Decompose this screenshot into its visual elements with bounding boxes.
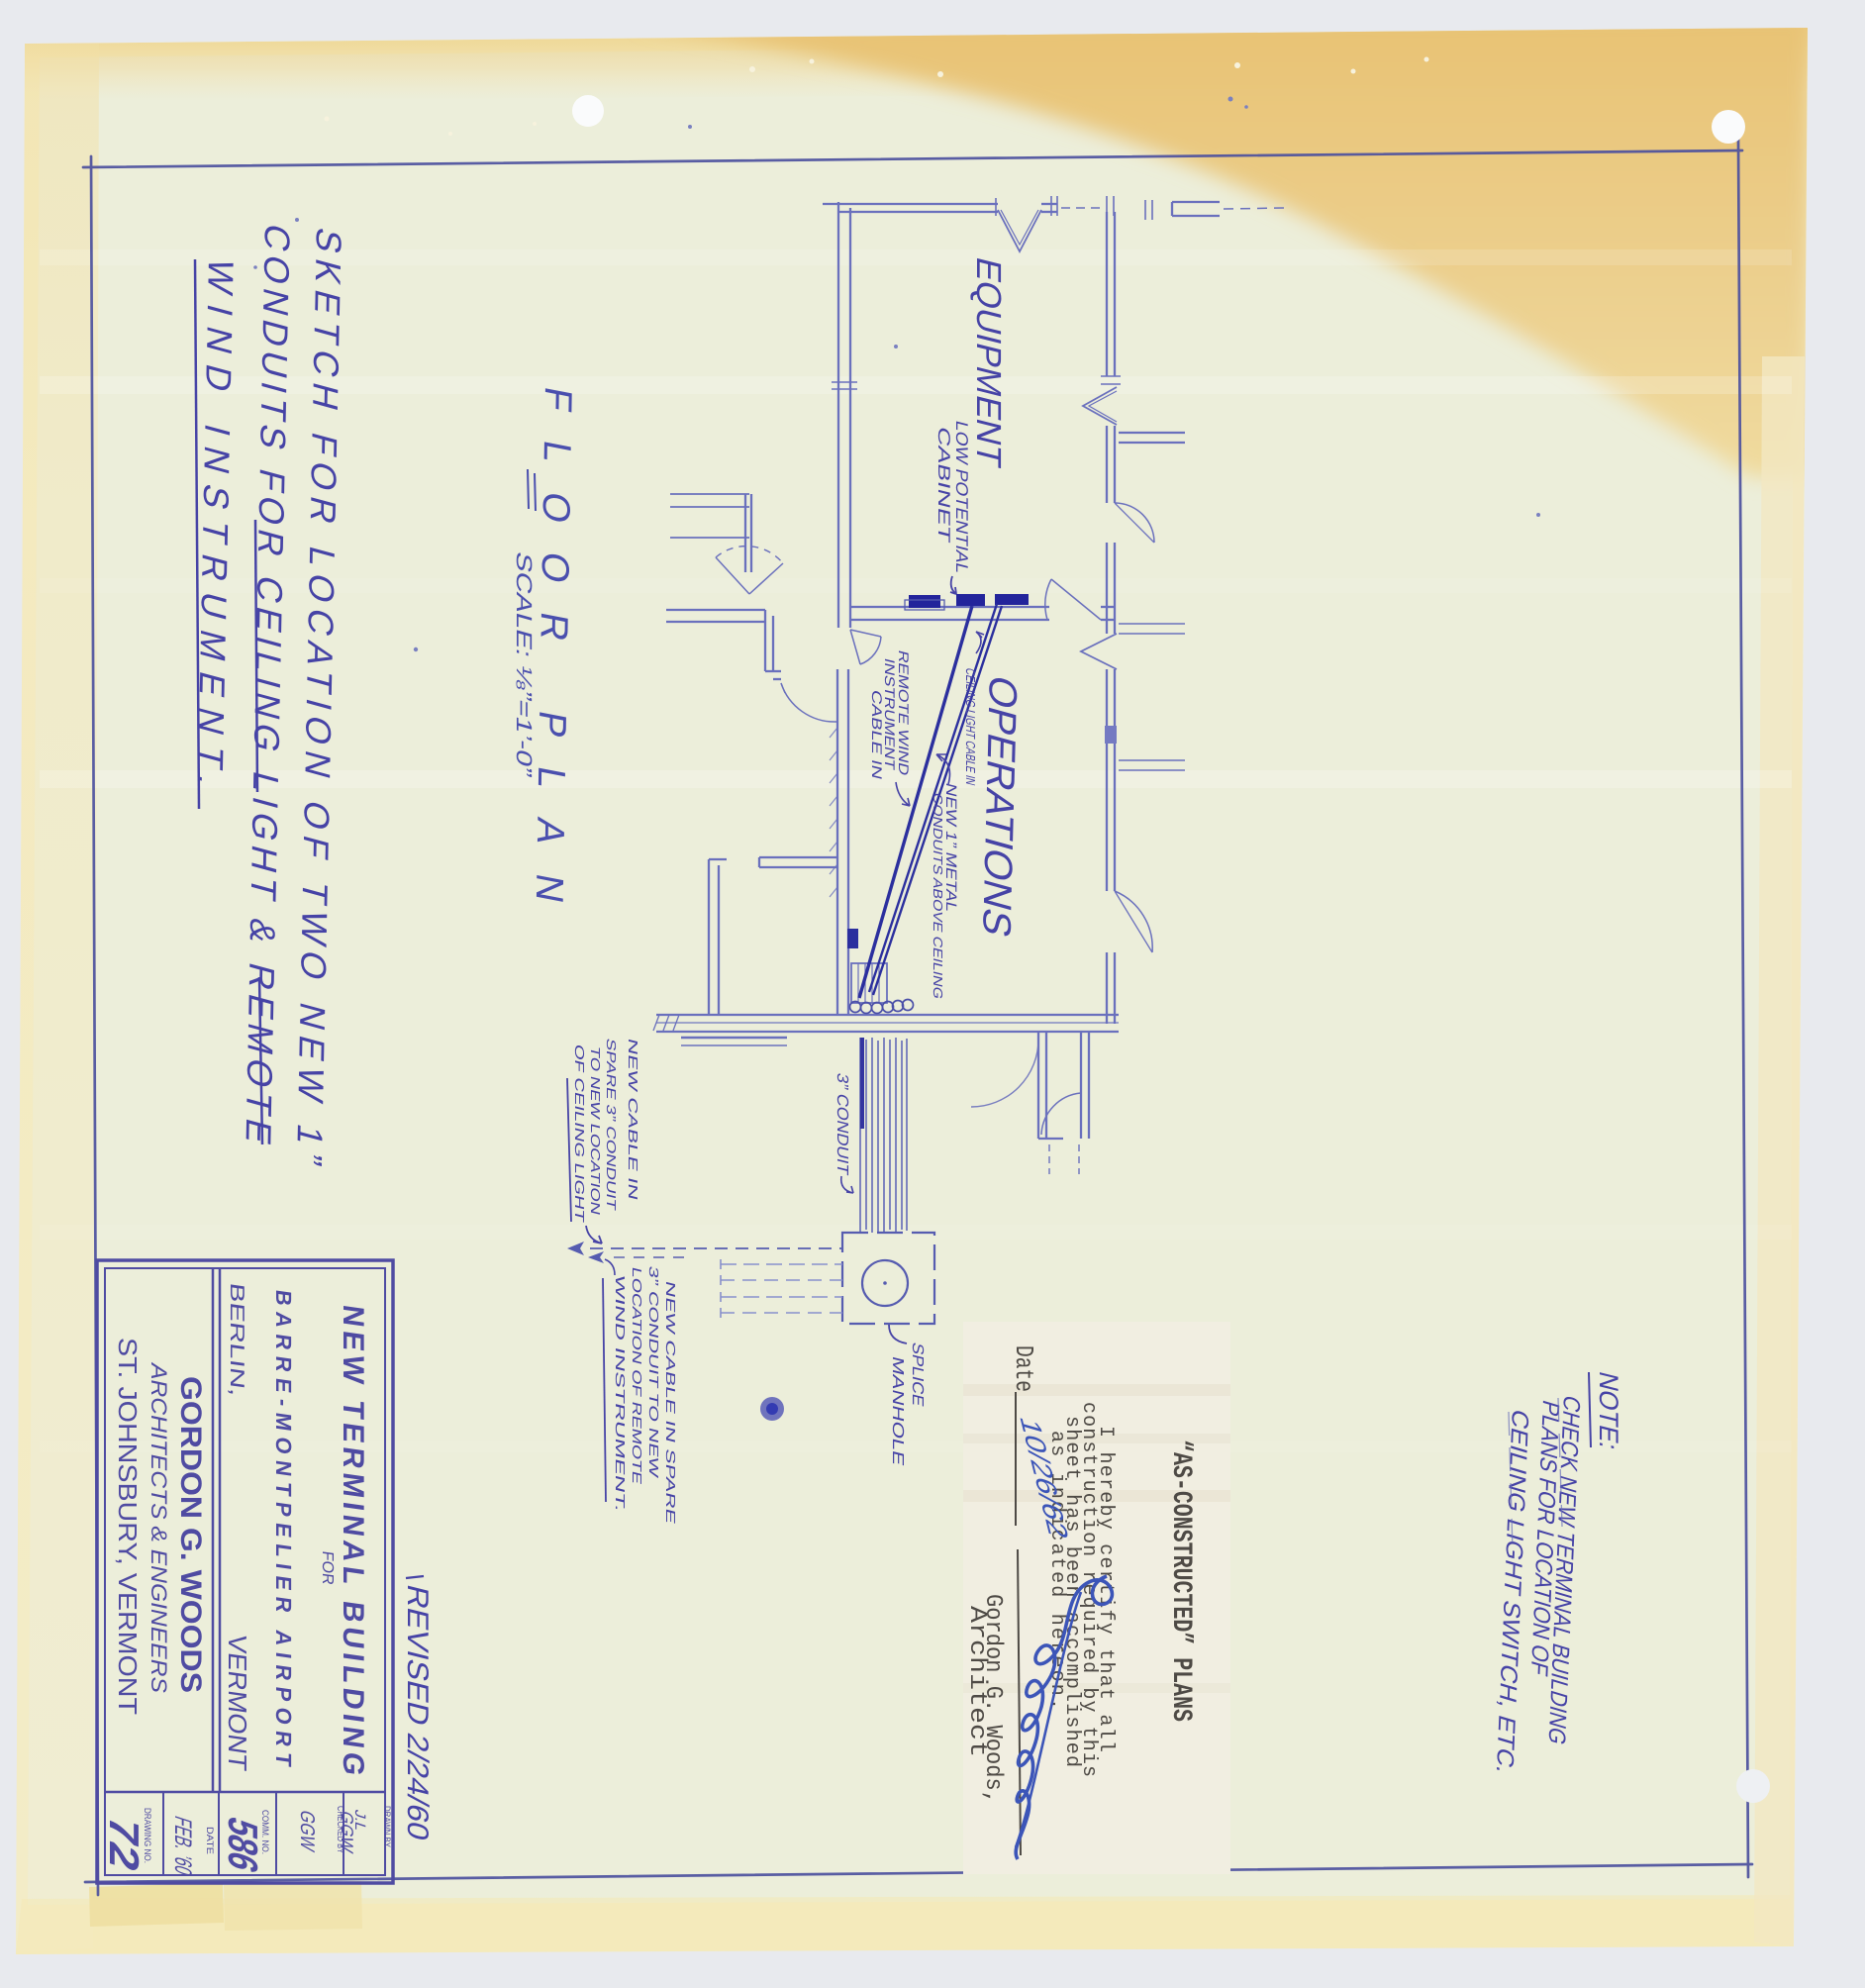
svg-text:ARCHITECTS & ENGINEERS: ARCHITECTS & ENGINEERS	[147, 1361, 171, 1694]
svg-text:CABLE IN: CABLE IN	[868, 688, 884, 781]
svg-text:OPERATIONS: OPERATIONS	[974, 671, 1026, 943]
svg-text:“AS-CONSTRUCTED” PLANS: “AS-CONSTRUCTED” PLANS	[1165, 1440, 1196, 1722]
svg-text:BERLIN,: BERLIN,	[226, 1281, 247, 1398]
svg-text:DRAWN BY: DRAWN BY	[382, 1806, 392, 1847]
svg-text:OF CEILING LIGHT: OF CEILING LIGHT	[572, 1043, 587, 1224]
svg-text:CHECKED BY: CHECKED BY	[336, 1806, 345, 1853]
svg-text:DATE: DATE	[205, 1827, 215, 1854]
svg-text:TO NEW LOCATION: TO NEW LOCATION	[588, 1044, 603, 1217]
svg-text:ST. JOHNSBURY, VERMONT: ST. JOHNSBURY, VERMONT	[113, 1338, 143, 1715]
svg-text:NEW CABLE IN SPARE: NEW CABLE IN SPARE	[663, 1279, 678, 1526]
svg-text:NOTE:: NOTE:	[1594, 1369, 1624, 1454]
svg-text:Architect: Architect	[963, 1606, 990, 1757]
svg-text:NEW CABLE IN: NEW CABLE IN	[626, 1037, 640, 1202]
svg-text:SPLICE: SPLICE	[909, 1341, 927, 1409]
svg-text:SPARE 3” CONDUIT: SPARE 3” CONDUIT	[604, 1037, 619, 1212]
svg-text:LOCATION OF REMOTE: LOCATION OF REMOTE	[630, 1265, 644, 1486]
svg-text:EQUIPMENT: EQUIPMENT	[969, 253, 1008, 471]
svg-text:CABINET: CABINET	[934, 425, 954, 546]
svg-text:LOW POTENTIAL: LOW POTENTIAL	[952, 419, 972, 576]
svg-text:Date: Date	[1009, 1345, 1038, 1392]
svg-text:CONDUITS ABOVE CEILING: CONDUITS ABOVE CEILING	[931, 791, 945, 1001]
svg-text:SCALE: ⅛”=1’-0”: SCALE: ⅛”=1’-0”	[512, 549, 537, 780]
svg-text:GORDON G. WOODS: GORDON G. WOODS	[174, 1376, 207, 1693]
svg-text:CEILING LIGHT CABLE IN: CEILING LIGHT CABLE IN	[963, 666, 978, 787]
svg-text:BARRE-MONTPELIER AIRPORT: BARRE-MONTPELIER AIRPORT	[271, 1288, 296, 1768]
svg-text:VERMONT: VERMONT	[223, 1633, 252, 1772]
svg-text:3” CONDUIT TO NEW: 3” CONDUIT TO NEW	[646, 1264, 661, 1480]
svg-text:MANHOLE: MANHOLE	[889, 1354, 907, 1468]
svg-text:GGW: GGW	[296, 1807, 318, 1854]
svg-text:FEB. ’60: FEB. ’60	[169, 1813, 195, 1879]
svg-text:3” CONDUIT: 3” CONDUIT	[834, 1071, 851, 1176]
svg-text:REVISED 2/24/60: REVISED 2/24/60	[401, 1581, 434, 1843]
svg-text:WIND INSTRUMENT.: WIND INSTRUMENT.	[613, 1273, 628, 1514]
svg-text:FOR: FOR	[319, 1549, 337, 1586]
